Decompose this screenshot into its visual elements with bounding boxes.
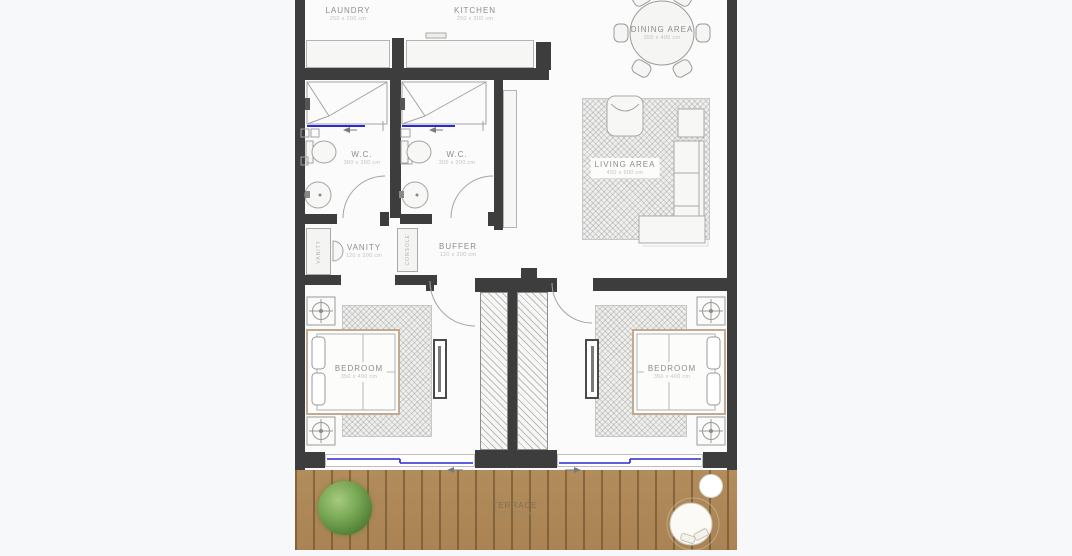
door-swing-arrow-icon xyxy=(343,127,350,133)
pillow xyxy=(707,373,720,405)
room-label-bedroom-right: BEDROOM 350 x 400 cm xyxy=(644,362,700,382)
room-dims: 250 x 200 cm xyxy=(325,16,370,22)
terrace-lounge xyxy=(667,475,723,551)
shower-head-right-icon xyxy=(400,98,405,110)
coffee-table xyxy=(639,216,705,243)
shower-right xyxy=(402,82,486,124)
slide-arrow-left-icon xyxy=(447,467,454,473)
room-dims: 450 x 500 cm xyxy=(595,170,656,176)
room-label-laundry: LAUNDRY 250 x 200 cm xyxy=(325,6,370,22)
pillow xyxy=(707,337,720,369)
room-label-buffer: BUFFER 120 x 200 cm xyxy=(439,242,477,258)
door-arc-wc-left xyxy=(343,176,385,218)
shower-left xyxy=(307,82,387,124)
side-table-round xyxy=(700,475,723,498)
floor-plan-image: VANITY CONSOLE xyxy=(295,0,737,550)
room-name: TERRACE xyxy=(492,501,537,510)
room-label-wc-right: W.C. 300 x 200 cm xyxy=(439,150,476,166)
room-label-bedroom-left: BEDROOM 350 x 400 cm xyxy=(331,362,387,382)
furniture-layer xyxy=(295,0,737,550)
room-dims: 350 x 400 cm xyxy=(648,374,696,380)
room-label-living: LIVING AREA 450 x 500 cm xyxy=(591,158,660,178)
door-swing-arrow-icon xyxy=(429,127,436,133)
door-arc-bedroom-right xyxy=(552,283,592,323)
pillow xyxy=(312,337,325,369)
room-name: DINING AREA xyxy=(631,25,694,34)
pillow xyxy=(312,373,325,405)
vanity-stool xyxy=(333,241,343,261)
room-label-terrace: TERRACE 150 x 900 cm xyxy=(492,501,537,517)
room-dims: 300 x 200 cm xyxy=(439,160,476,166)
room-name: LIVING AREA xyxy=(595,160,656,169)
room-dims: 300 x 200 cm xyxy=(344,160,381,166)
door-arc-wc-right xyxy=(451,176,493,218)
room-name: W.C. xyxy=(344,150,381,159)
room-label-vanity: VANITY 120 x 200 cm xyxy=(346,243,383,259)
room-dims: 120 x 200 cm xyxy=(439,252,477,258)
room-dims: 120 x 200 cm xyxy=(346,253,383,259)
room-name: W.C. xyxy=(439,150,476,159)
armchair xyxy=(607,96,643,136)
room-name: BEDROOM xyxy=(335,364,383,373)
room-name: BEDROOM xyxy=(648,364,696,373)
sink-right xyxy=(402,182,428,208)
kitchen-sink xyxy=(426,33,446,38)
room-label-kitchen: KITCHEN 250 x 300 cm xyxy=(454,6,496,22)
shower-head-left-icon xyxy=(305,98,310,110)
room-name: KITCHEN xyxy=(454,6,496,15)
room-name: VANITY xyxy=(346,243,383,252)
sliding-door-left xyxy=(327,459,473,463)
room-label-wc-left: W.C. 300 x 200 cm xyxy=(344,150,381,166)
room-name: LAUNDRY xyxy=(325,6,370,15)
room-label-dining: DINING AREA 350 x 400 cm xyxy=(631,25,694,41)
sliding-door-right xyxy=(559,459,701,463)
room-name: BUFFER xyxy=(439,242,477,251)
door-arc-bedroom-left xyxy=(430,281,475,326)
room-dims: 150 x 900 cm xyxy=(492,511,537,517)
slide-arrow-right-icon xyxy=(574,467,581,473)
room-dims: 350 x 400 cm xyxy=(631,35,694,41)
room-dims: 350 x 400 cm xyxy=(335,374,383,380)
room-dims: 250 x 300 cm xyxy=(454,16,496,22)
side-table xyxy=(678,109,704,137)
